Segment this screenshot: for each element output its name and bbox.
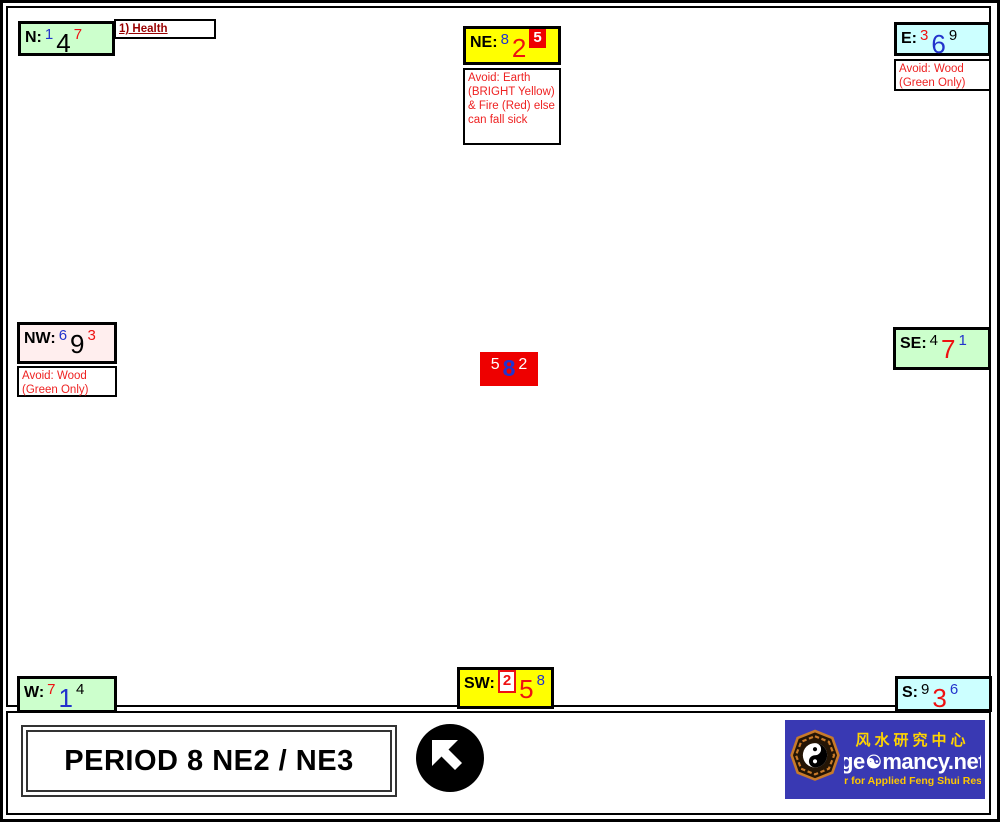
sector-w: W: 7 1 4 — [17, 676, 117, 713]
yin-yang-icon: ☯ — [866, 753, 882, 772]
direction-label: E: — [901, 30, 917, 48]
star-left: 8 — [501, 31, 509, 50]
arrow-up-left-icon — [414, 722, 486, 794]
star-right: 7 — [74, 26, 82, 45]
star-right: 4 — [76, 681, 84, 700]
direction-label: W: — [24, 684, 44, 702]
direction-label: SW: — [464, 675, 495, 693]
logo-brand-text: ge☯mancy.net — [844, 750, 981, 773]
direction-label: S: — [902, 684, 918, 702]
geomancy-logo[interactable]: 风水研究中心 ge☯mancy.net Center for Applied F… — [785, 720, 985, 799]
direction-label: NW: — [24, 330, 56, 348]
star-main: 5 — [519, 676, 533, 702]
ne-avoid-box: Avoid: Earth (BRIGHT Yellow) & Fire (Red… — [463, 68, 561, 145]
star-right: 6 — [950, 681, 958, 700]
sector-n: N: 1 4 7 — [18, 21, 115, 56]
direction-label: N: — [25, 29, 42, 47]
star-main: 2 — [512, 35, 526, 61]
period-title-box: PERIOD 8 NE2 / NE3 — [21, 725, 397, 797]
nw-avoid-box: Avoid: Wood (Green Only) — [17, 366, 117, 397]
logo-tagline: Center for Applied Feng Shui Research — [844, 775, 981, 787]
direction-label: NE: — [470, 34, 498, 52]
logo-chinese-text: 风水研究中心 — [855, 732, 969, 750]
star-main: 1 — [58, 685, 72, 711]
flying-star-chart-page: N: 1 4 7 1) Health NE: 8 2 5 Avoid: Eart… — [0, 0, 1000, 822]
period-title: PERIOD 8 NE2 / NE3 — [64, 745, 353, 778]
star-right: 5 — [529, 29, 545, 48]
star-main: 8 — [503, 357, 516, 380]
star-main: 3 — [932, 685, 946, 711]
star-left: 9 — [921, 681, 929, 700]
sector-center: 5 8 2 — [480, 352, 538, 386]
star-main: 6 — [931, 31, 945, 57]
star-left: 4 — [930, 332, 938, 351]
sector-s: S: 9 3 6 — [895, 676, 992, 712]
logo-text-block: 风水研究中心 ge☯mancy.net Center for Applied F… — [844, 732, 981, 787]
star-right: 1 — [958, 332, 966, 351]
sector-se: SE: 4 7 1 — [893, 327, 991, 370]
sector-ne: NE: 8 2 5 — [463, 26, 561, 65]
sector-nw: NW: 6 9 3 — [17, 322, 117, 364]
bagua-icon — [789, 726, 841, 793]
star-main: 4 — [56, 30, 70, 56]
chart-area: N: 1 4 7 1) Health NE: 8 2 5 Avoid: Eart… — [6, 6, 991, 707]
star-right: 8 — [537, 672, 545, 691]
star-left: 3 — [920, 27, 928, 46]
direction-label: SE: — [900, 335, 927, 353]
star-left: 6 — [59, 327, 67, 346]
health-label-box: 1) Health — [114, 19, 216, 39]
e-avoid-box: Avoid: Wood (Green Only) — [894, 59, 991, 91]
star-left: 7 — [47, 681, 55, 700]
sector-e: E: 3 6 9 — [894, 22, 991, 56]
star-right: 3 — [88, 327, 96, 346]
star-left: 5 — [491, 355, 500, 375]
sector-sw: SW: 2 5 8 — [457, 667, 554, 709]
star-left: 2 — [498, 670, 516, 693]
period-title-inner: PERIOD 8 NE2 / NE3 — [26, 730, 392, 792]
star-main: 9 — [70, 331, 84, 357]
star-right: 9 — [949, 27, 957, 46]
star-left: 1 — [45, 26, 53, 45]
star-right: 2 — [518, 355, 527, 375]
star-main: 7 — [941, 336, 955, 362]
footer-bar: PERIOD 8 NE2 / NE3 风水研究中心 — [6, 711, 991, 815]
